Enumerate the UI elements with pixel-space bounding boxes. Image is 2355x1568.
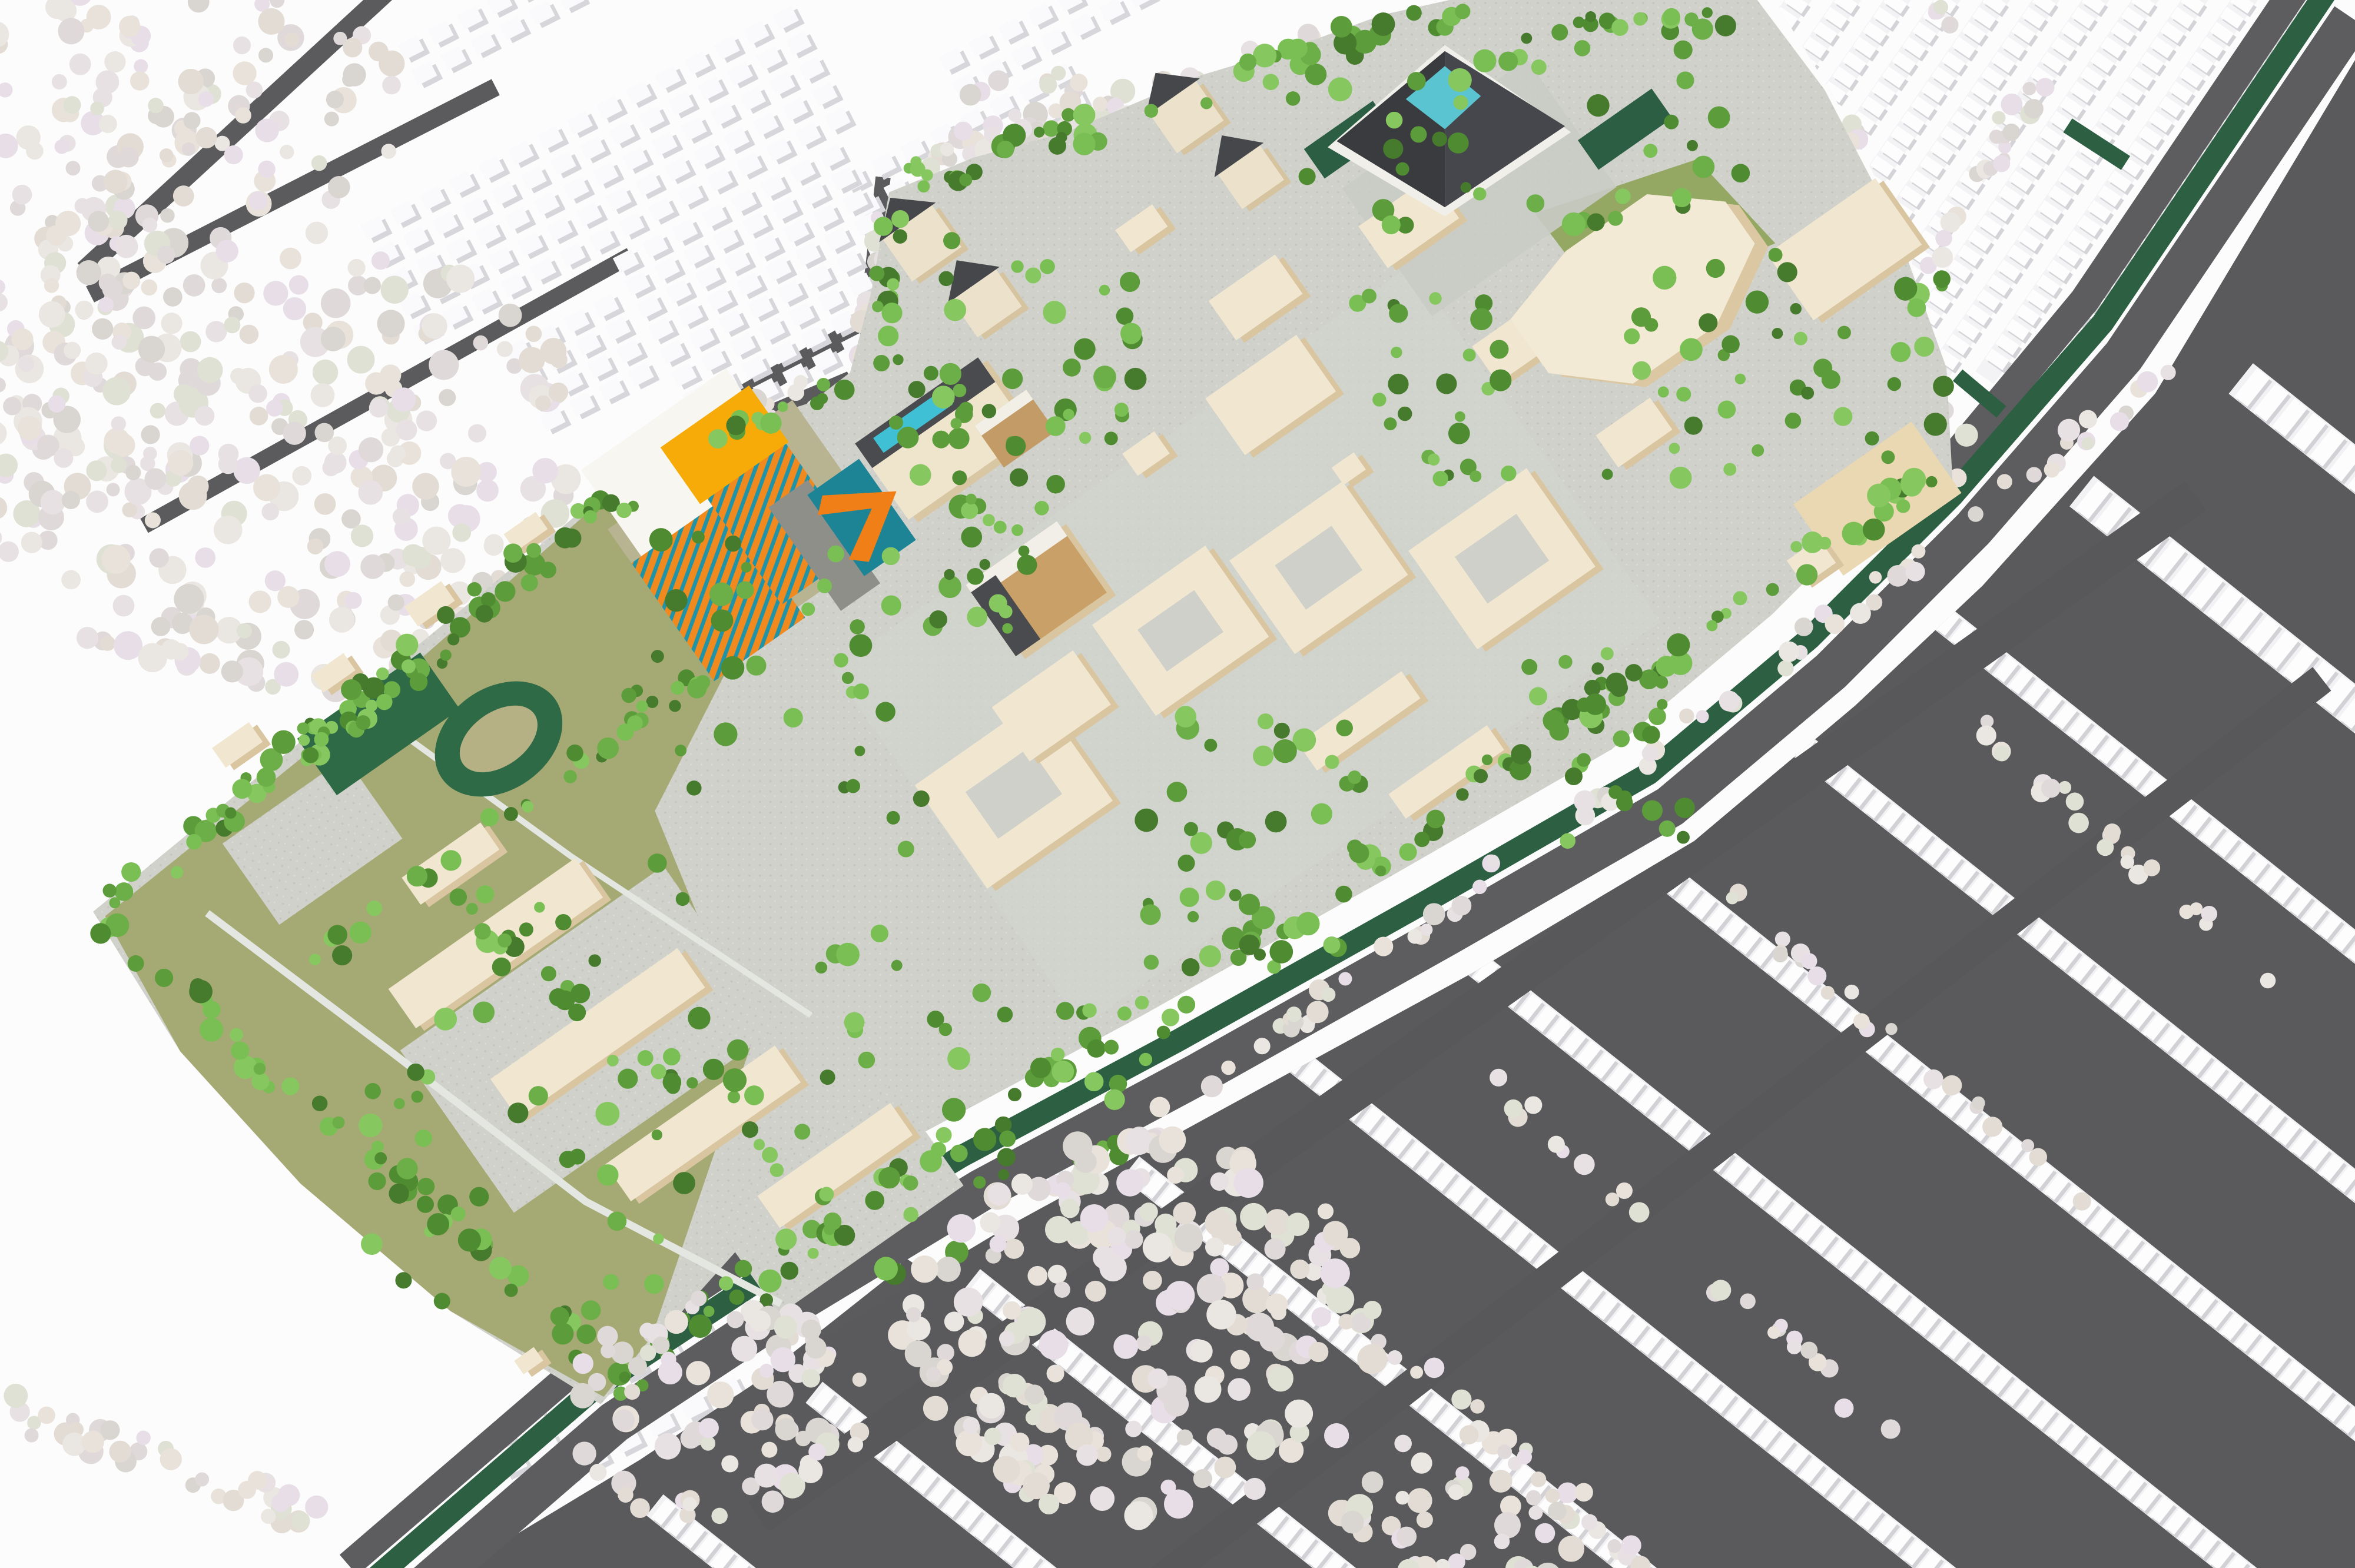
tree <box>1326 1285 1354 1314</box>
tree <box>891 960 903 971</box>
tree <box>1410 126 1427 142</box>
tree <box>1888 377 1901 391</box>
tree <box>1905 562 1925 582</box>
tree <box>1386 112 1403 129</box>
tree <box>1642 726 1660 744</box>
tree <box>1587 94 1609 117</box>
tree <box>967 607 987 627</box>
tree <box>663 1073 682 1092</box>
masterplan-render <box>0 0 2355 1568</box>
tree <box>1407 72 1426 91</box>
tree <box>1144 955 1159 970</box>
tree <box>1394 1435 1412 1453</box>
tree <box>481 592 496 607</box>
tree <box>475 923 491 939</box>
tree <box>393 508 410 526</box>
tree <box>411 1091 423 1102</box>
tree <box>82 1431 104 1453</box>
tree <box>898 841 914 857</box>
tree <box>1271 1304 1286 1320</box>
tree <box>249 191 268 210</box>
tree <box>526 325 542 342</box>
tree <box>940 363 961 385</box>
tree <box>1408 929 1422 944</box>
tree <box>1104 431 1118 445</box>
tree <box>261 1509 276 1524</box>
tree <box>966 494 976 504</box>
tree <box>1777 660 1794 677</box>
tree <box>345 592 362 609</box>
tree <box>1881 450 1895 464</box>
tree <box>1508 1457 1522 1471</box>
tree <box>396 1158 417 1179</box>
tree <box>360 554 385 579</box>
tree <box>644 1274 664 1294</box>
tree <box>1642 745 1659 762</box>
tree <box>1692 18 1713 39</box>
tree <box>1657 699 1667 710</box>
tree <box>1432 471 1448 487</box>
tree <box>1085 1281 1106 1302</box>
tree <box>878 325 898 346</box>
tree <box>1201 1075 1223 1097</box>
tree <box>1461 182 1471 192</box>
tree <box>2104 823 2121 841</box>
tree <box>1581 1514 1598 1530</box>
tree <box>314 732 329 747</box>
tree <box>150 403 166 419</box>
tree <box>1288 39 1308 59</box>
tree <box>1182 958 1200 976</box>
tree <box>1190 1340 1212 1363</box>
tree <box>1586 11 1596 22</box>
tree <box>1584 680 1601 696</box>
tree <box>973 1128 996 1151</box>
tree <box>1926 476 1937 487</box>
tree <box>1448 423 1470 444</box>
tree <box>121 862 141 882</box>
tree <box>1167 1167 1184 1184</box>
tree <box>1254 1038 1271 1054</box>
tree <box>1184 822 1198 836</box>
tree <box>834 380 855 400</box>
tree <box>55 139 69 154</box>
tree <box>1837 325 1851 339</box>
tree <box>774 1315 797 1338</box>
tree <box>618 1487 633 1503</box>
tree <box>1845 985 1859 999</box>
tree <box>1140 904 1160 925</box>
tree <box>640 1345 656 1361</box>
tree <box>291 1511 310 1530</box>
tree <box>205 321 227 342</box>
tree <box>1692 156 1714 178</box>
tree <box>869 266 884 281</box>
tree <box>651 1064 666 1079</box>
tree <box>1003 1301 1021 1320</box>
tree <box>1740 1294 1756 1310</box>
tree <box>2260 973 2276 989</box>
tree <box>332 945 352 965</box>
tree <box>2180 905 2194 919</box>
tree <box>973 1176 986 1188</box>
tree <box>924 366 938 381</box>
tree <box>416 410 437 431</box>
tree <box>911 1255 938 1283</box>
tree <box>412 473 439 500</box>
tree <box>1025 267 1041 283</box>
tree <box>1941 212 1961 233</box>
tree <box>751 1408 773 1430</box>
tree <box>109 1441 131 1463</box>
tree <box>714 722 737 746</box>
tree <box>865 1191 884 1210</box>
tree <box>1143 1233 1173 1263</box>
tree <box>1331 16 1352 38</box>
tree <box>1204 739 1217 752</box>
tree <box>820 1069 835 1085</box>
tree <box>503 543 523 563</box>
tree <box>86 460 107 481</box>
tree <box>1162 1008 1179 1026</box>
tree <box>801 1369 820 1388</box>
tree <box>597 1164 618 1185</box>
tree <box>255 118 278 142</box>
tree <box>1942 1075 1962 1095</box>
tree <box>967 568 984 585</box>
tree <box>2073 1192 2091 1211</box>
tree <box>86 490 108 513</box>
tree <box>1407 1488 1432 1513</box>
tree <box>309 954 321 965</box>
tree <box>1908 298 1926 317</box>
tree <box>1672 188 1691 207</box>
tree <box>1116 307 1134 325</box>
tree <box>1136 1336 1152 1351</box>
tree <box>1099 1254 1126 1281</box>
tree <box>102 377 131 405</box>
tree <box>400 572 416 587</box>
tree <box>817 378 830 391</box>
tree <box>1104 1089 1125 1110</box>
tree <box>1972 1097 1985 1109</box>
tree <box>932 431 950 449</box>
tree <box>1574 790 1596 812</box>
tree <box>1341 1511 1364 1534</box>
tree <box>274 662 298 687</box>
tree <box>104 51 125 72</box>
tree <box>306 222 328 244</box>
tree <box>727 1039 748 1061</box>
tree <box>1353 30 1376 54</box>
tree <box>2021 1139 2034 1152</box>
tree <box>889 416 903 430</box>
tree <box>2068 813 2089 833</box>
tree <box>278 1484 300 1506</box>
tree <box>1335 886 1352 903</box>
tree <box>489 1257 512 1280</box>
tree <box>1286 1212 1309 1236</box>
tree <box>237 623 252 639</box>
tree <box>374 1152 387 1164</box>
tree <box>727 1311 744 1328</box>
tree <box>280 145 294 159</box>
tree <box>550 1307 569 1326</box>
tree <box>1246 1431 1275 1461</box>
tree <box>402 544 424 566</box>
tree <box>18 356 34 372</box>
tree <box>107 483 120 496</box>
tree <box>151 617 171 636</box>
tree <box>1286 1006 1302 1022</box>
tree <box>179 481 207 510</box>
tree <box>128 955 144 972</box>
tree <box>25 1429 39 1443</box>
tree <box>122 272 140 290</box>
tree <box>1773 947 1788 962</box>
tree <box>669 700 681 712</box>
tree <box>197 357 223 383</box>
tree <box>1607 1539 1621 1553</box>
tree <box>1258 713 1273 729</box>
tree <box>1699 313 1717 332</box>
tree <box>1521 33 1532 44</box>
tree <box>1853 1013 1870 1029</box>
tree <box>711 609 734 632</box>
tree <box>1528 1506 1543 1520</box>
tree <box>289 275 309 294</box>
tree <box>402 659 416 673</box>
tree <box>328 437 347 456</box>
tree <box>395 1272 412 1288</box>
tree <box>1017 555 1037 575</box>
tree <box>1206 1300 1236 1330</box>
tree <box>1497 1444 1512 1459</box>
tree <box>846 779 860 793</box>
tree <box>1524 1097 1542 1114</box>
tree <box>104 170 128 194</box>
tree <box>65 161 80 175</box>
tree <box>1093 366 1116 388</box>
tree <box>280 248 301 270</box>
tree <box>218 444 239 464</box>
tree <box>2036 78 2055 97</box>
tree <box>721 1455 738 1472</box>
tree <box>1383 139 1403 159</box>
tree <box>1230 1350 1250 1369</box>
tree <box>364 1083 381 1099</box>
tree <box>1885 1023 1897 1035</box>
tree <box>195 406 215 426</box>
tree <box>1093 97 1108 112</box>
tree <box>903 1175 918 1191</box>
tree <box>1562 212 1586 236</box>
tree <box>2044 462 2060 478</box>
tree <box>258 8 285 35</box>
tree <box>497 341 513 357</box>
tree <box>781 1262 799 1280</box>
tree <box>1228 1378 1251 1401</box>
tree <box>663 1048 681 1066</box>
tree <box>1139 1053 1152 1066</box>
tree <box>1659 820 1676 837</box>
tree <box>853 1373 867 1387</box>
tree <box>392 387 416 411</box>
tree <box>248 1471 267 1490</box>
tree <box>1591 662 1604 675</box>
tree <box>754 1464 778 1488</box>
tree <box>1145 104 1158 118</box>
tree <box>160 208 174 222</box>
tree <box>1674 41 1693 59</box>
tree <box>1348 770 1361 784</box>
tree <box>872 301 883 312</box>
tree <box>476 480 499 502</box>
tree <box>224 317 240 333</box>
tree <box>917 180 930 192</box>
tree <box>875 702 895 722</box>
tree <box>1451 1390 1471 1410</box>
tree <box>805 1337 827 1358</box>
tree <box>1863 519 1885 541</box>
tree <box>947 1214 976 1243</box>
tree <box>141 425 160 444</box>
tree <box>473 335 489 351</box>
tree <box>1663 8 1680 26</box>
tree <box>729 1290 745 1305</box>
tree <box>1993 155 2010 172</box>
tree <box>686 1077 698 1088</box>
tree <box>16 125 41 150</box>
tree <box>476 885 495 903</box>
tree <box>324 551 350 577</box>
tree <box>198 91 214 107</box>
tree <box>54 449 73 468</box>
tree <box>761 1442 777 1458</box>
tree <box>1253 44 1276 67</box>
tree <box>1785 413 1802 429</box>
tree <box>566 745 583 762</box>
tree <box>450 888 467 906</box>
tree <box>1349 843 1369 863</box>
tree <box>1076 1444 1098 1466</box>
tree <box>142 217 158 232</box>
tree <box>1669 443 1680 454</box>
tree <box>529 1086 548 1105</box>
tree <box>203 1001 221 1019</box>
tree <box>1388 374 1408 394</box>
tree <box>77 627 98 649</box>
tree <box>38 1407 55 1424</box>
tree <box>936 1127 952 1143</box>
tree <box>1664 115 1679 129</box>
tree <box>535 396 551 411</box>
tree <box>652 1130 662 1140</box>
tree <box>973 984 991 1002</box>
tree <box>929 610 947 629</box>
tree <box>522 801 533 813</box>
tree <box>497 934 512 948</box>
tree <box>630 1498 650 1518</box>
tree <box>584 510 597 523</box>
tree <box>1545 1489 1560 1503</box>
tree <box>897 427 919 449</box>
tree <box>189 614 218 644</box>
tree <box>1175 706 1196 727</box>
tree <box>570 1383 595 1408</box>
tree <box>190 436 209 456</box>
tree <box>1002 623 1013 634</box>
tree <box>333 1117 345 1129</box>
tree <box>1787 1340 1802 1354</box>
tree <box>1865 431 1879 446</box>
tree <box>595 1102 619 1126</box>
tree <box>321 327 346 351</box>
tree <box>1159 1127 1186 1154</box>
tree <box>1338 972 1352 985</box>
tree <box>1955 424 1978 447</box>
tree <box>1063 409 1074 420</box>
tree <box>1706 259 1725 278</box>
tree <box>111 416 127 431</box>
tree <box>233 36 251 54</box>
tree <box>1263 74 1279 91</box>
tree <box>1526 1490 1541 1506</box>
tree <box>1264 1238 1285 1260</box>
tree <box>1239 894 1260 915</box>
tree <box>1601 647 1614 660</box>
tree <box>1056 132 1067 143</box>
tree <box>52 74 67 89</box>
tree <box>63 96 81 114</box>
tree <box>1308 1342 1328 1362</box>
tree <box>271 730 295 754</box>
tree <box>572 1441 596 1465</box>
tree <box>2097 839 2114 856</box>
tree <box>671 681 684 695</box>
tree <box>1034 501 1049 515</box>
tree <box>744 1085 764 1105</box>
tree <box>2026 467 2042 483</box>
tree <box>396 634 418 656</box>
tree <box>686 1361 710 1385</box>
tree <box>1253 746 1273 766</box>
tree <box>1911 544 1925 559</box>
tree <box>1490 369 1511 391</box>
tree <box>999 1331 1015 1347</box>
tree <box>1766 583 1779 596</box>
tree <box>1215 1457 1236 1479</box>
tree <box>258 161 276 178</box>
tree <box>691 1290 706 1306</box>
tree <box>959 174 972 187</box>
tree <box>1324 1423 1349 1448</box>
tree <box>100 1420 120 1440</box>
tree <box>440 649 451 660</box>
tree <box>437 606 455 624</box>
tree <box>96 70 120 94</box>
tree <box>621 688 636 703</box>
tree <box>495 581 515 602</box>
tree <box>762 1147 778 1163</box>
tree <box>161 639 181 660</box>
tree <box>2022 82 2036 95</box>
tree <box>1470 308 1492 330</box>
tree <box>55 211 81 236</box>
tree <box>1460 1425 1479 1444</box>
tree <box>555 914 572 931</box>
tree <box>1011 1174 1033 1195</box>
